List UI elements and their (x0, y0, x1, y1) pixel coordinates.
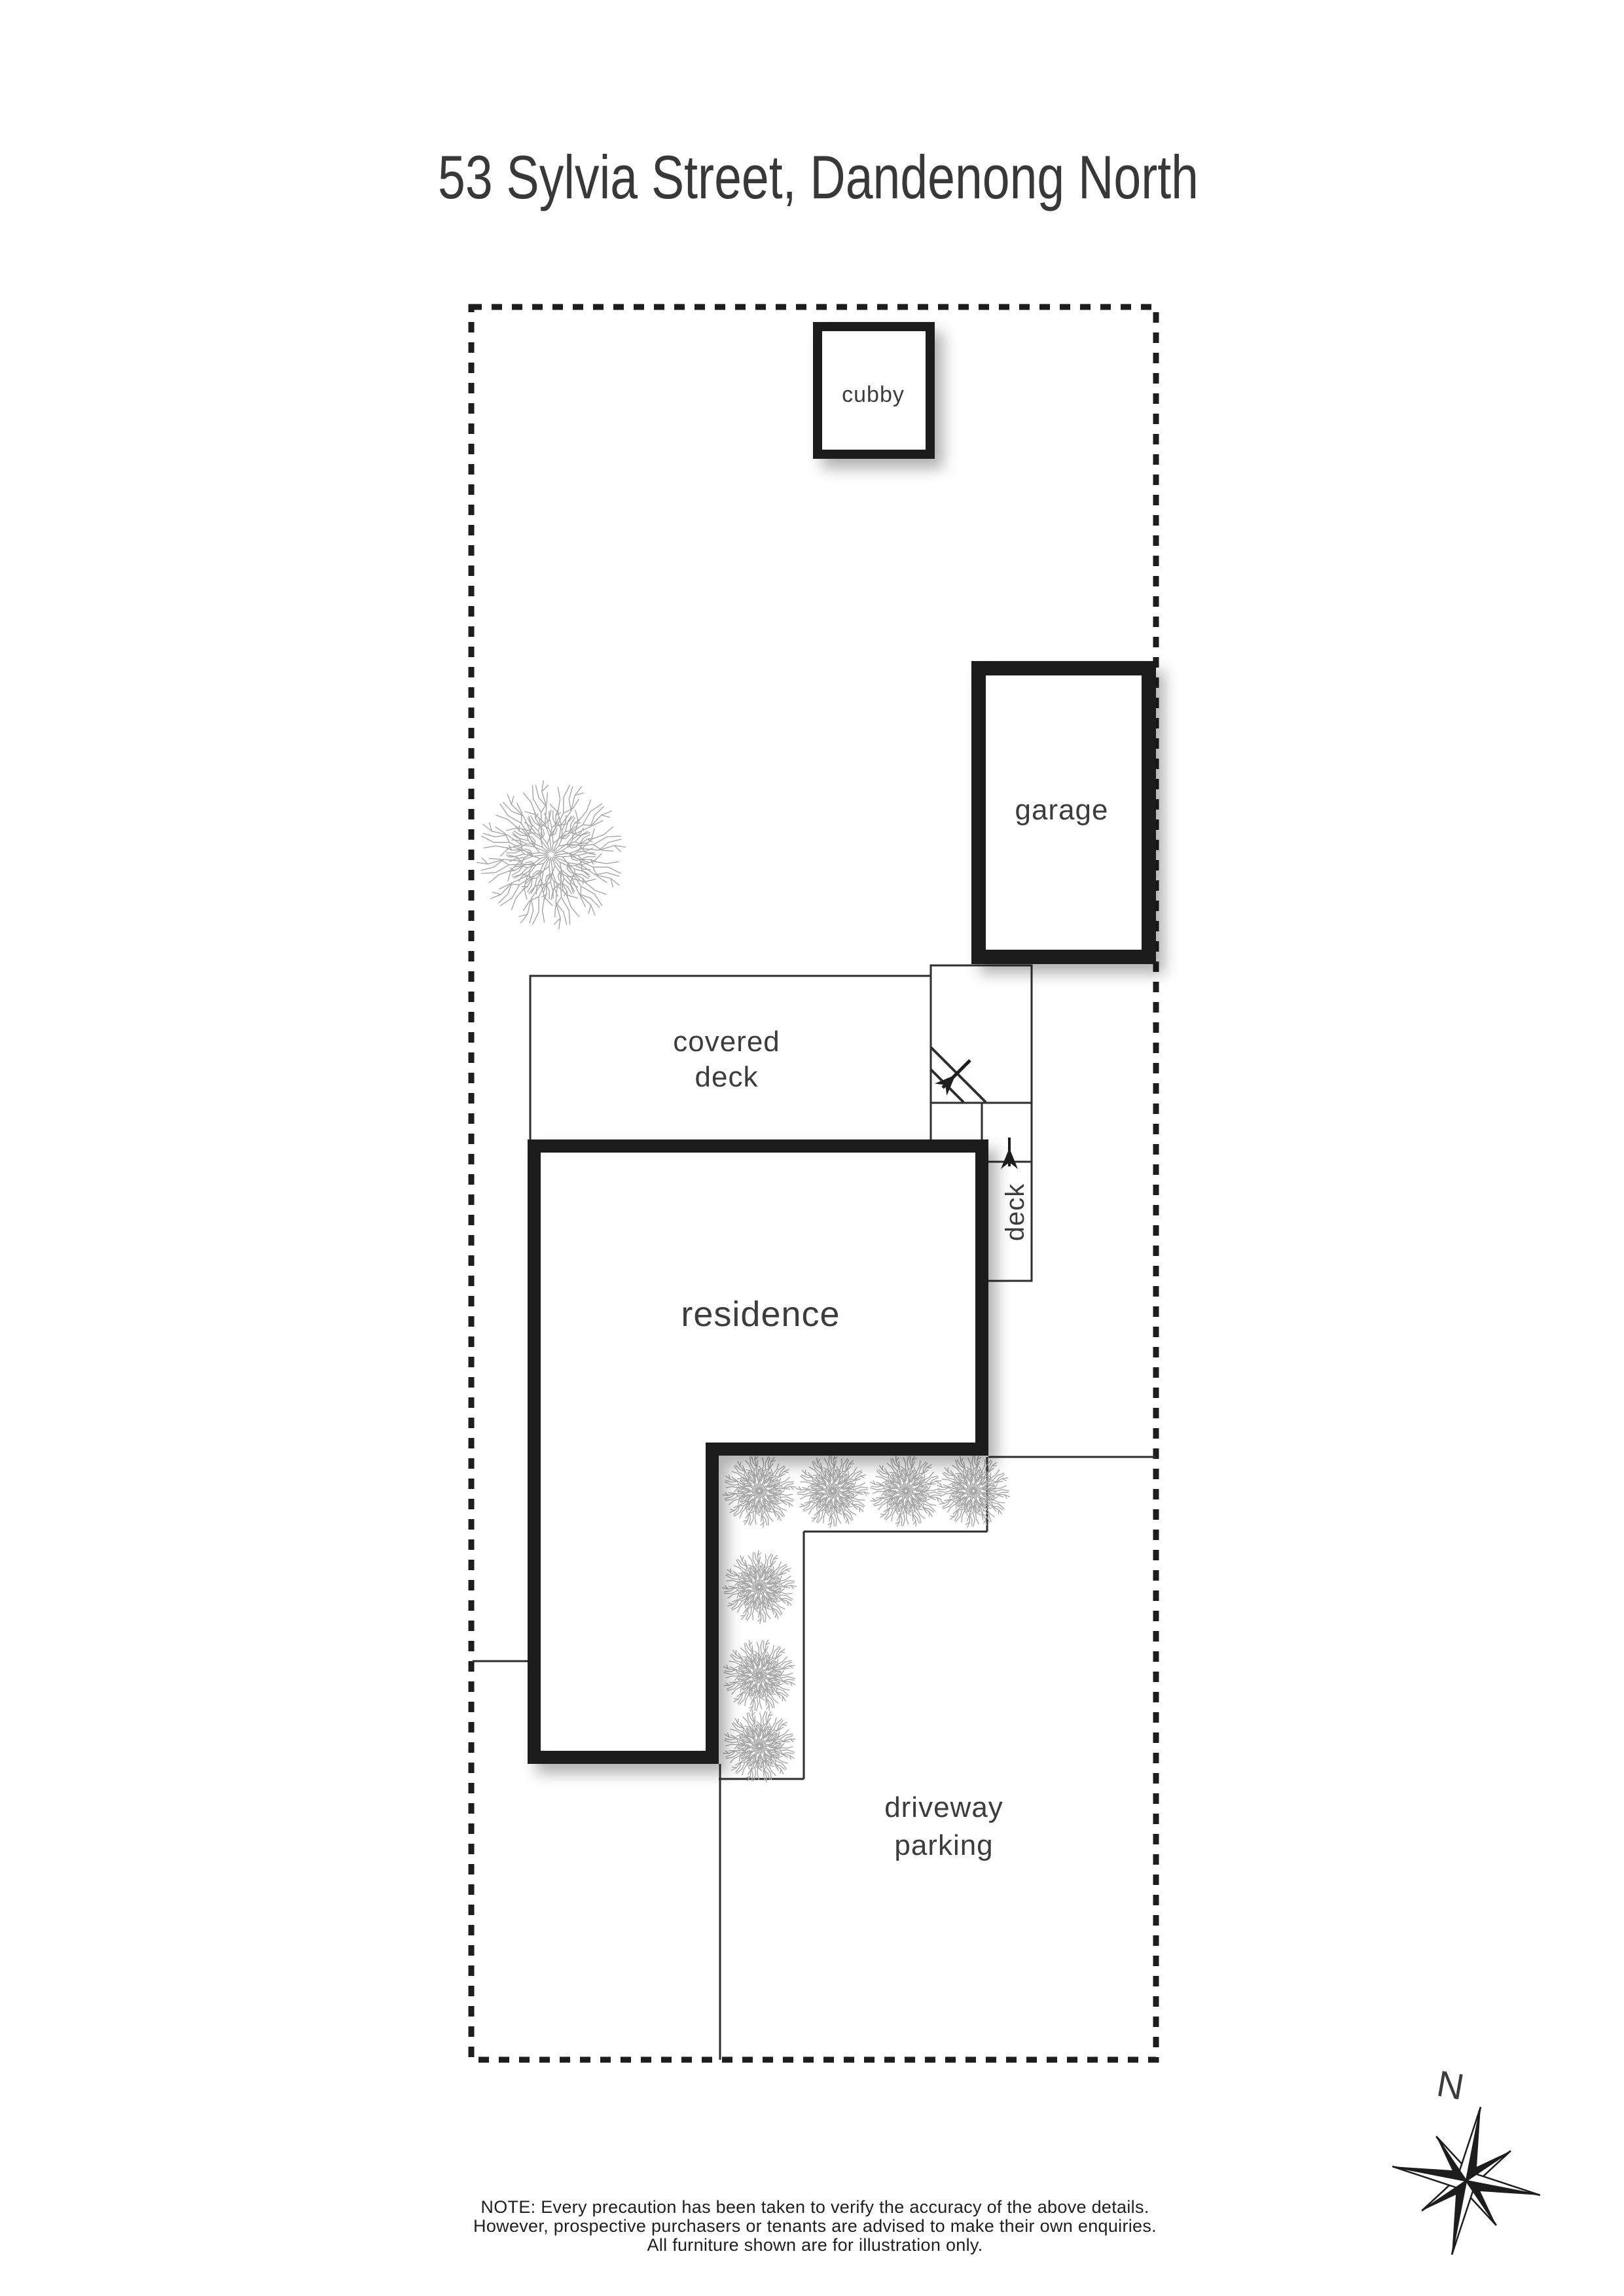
shrub-icon (708, 1536, 810, 1638)
page-title: 53 Sylvia Street, Dandenong North (438, 143, 1199, 212)
covered-deck-label: deck (695, 1061, 759, 1093)
compass-rose-icon (1377, 2092, 1555, 2270)
covered-deck-label: covered (673, 1026, 780, 1058)
site-plan: 53 Sylvia Street, Dandenong North covere… (0, 0, 1624, 2296)
driveway-label: driveway (884, 1791, 1003, 1823)
shrub-icon (710, 1626, 808, 1725)
shrub-icon (721, 1452, 797, 1529)
driveway-label: parking (894, 1829, 993, 1861)
garage-label: garage (1015, 794, 1108, 826)
deck-label: deck (1001, 1183, 1030, 1242)
floorplan-page: 53 Sylvia Street, Dandenong North covere… (0, 0, 1624, 2296)
garden-bed (708, 1437, 1020, 1797)
note-line-3: All furniture shown are for illustration… (647, 2235, 983, 2255)
garden-bed-lines (719, 1457, 1156, 1779)
tree-icon (473, 777, 630, 933)
note-line-2: However, prospective purchasers or tenan… (473, 2216, 1157, 2236)
shrub-icon (926, 1444, 1020, 1538)
shrub-icon (861, 1446, 950, 1535)
cubby-label: cubby (842, 382, 905, 407)
note-line-1: NOTE: Every precaution has been taken to… (480, 2197, 1149, 2217)
compass-north-label: N (1434, 2062, 1468, 2108)
residence-label: residence (681, 1295, 840, 1334)
shrub-icon (708, 1695, 810, 1797)
